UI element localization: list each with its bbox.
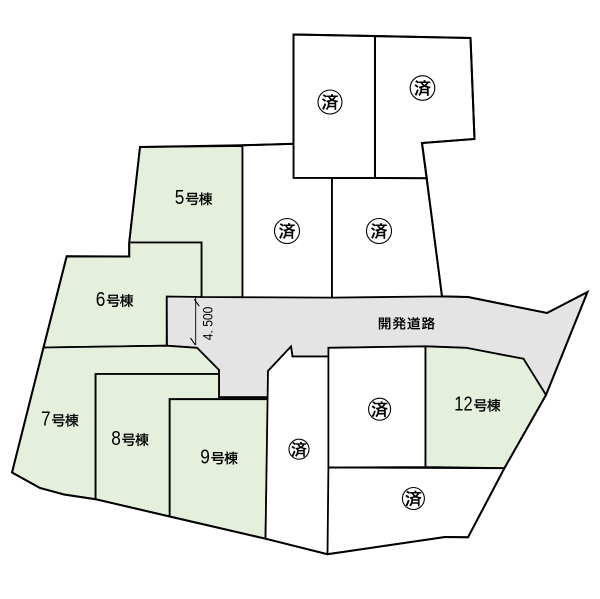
svg-text:9: 9 xyxy=(200,446,210,468)
svg-text:5: 5 xyxy=(175,187,185,209)
svg-text:6: 6 xyxy=(96,289,106,311)
svg-text:7: 7 xyxy=(41,409,51,431)
svg-text:4. 500: 4. 500 xyxy=(200,307,215,341)
svg-text:12: 12 xyxy=(454,394,472,416)
svg-text:8: 8 xyxy=(111,428,121,450)
